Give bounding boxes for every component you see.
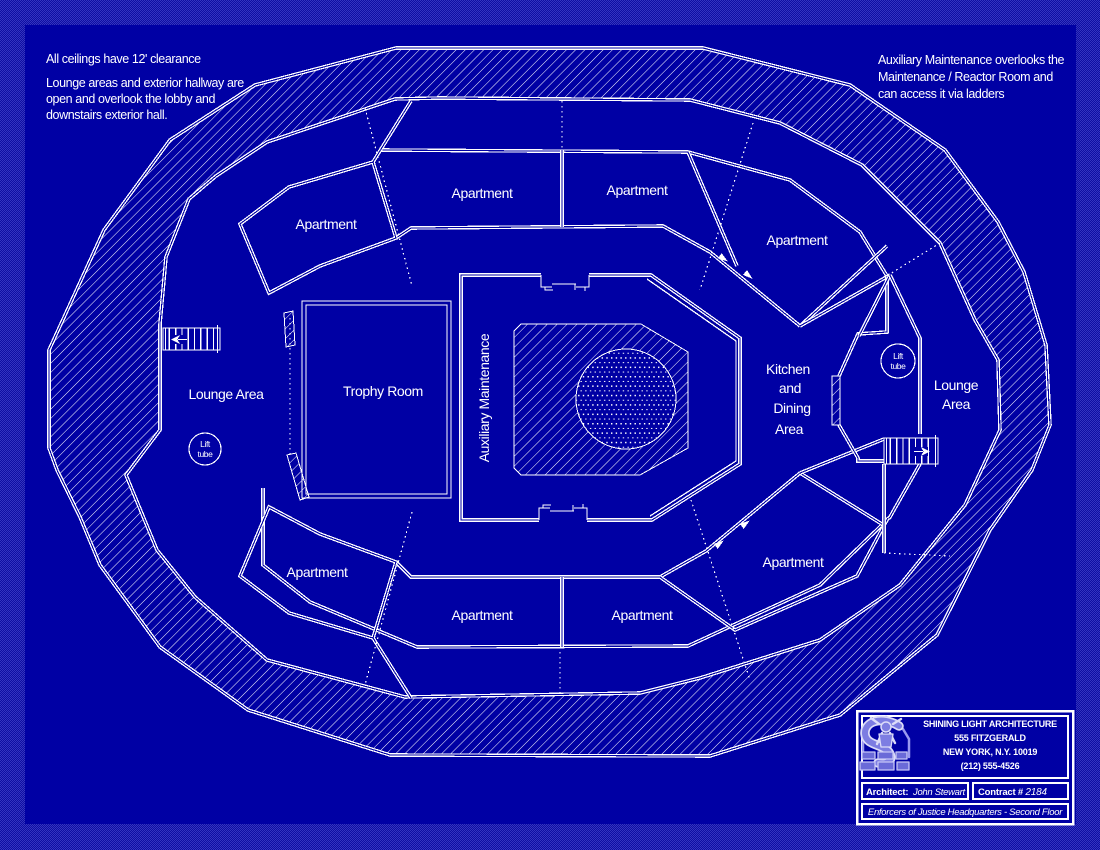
svg-text:Apartment: Apartment xyxy=(452,607,513,623)
svg-text:tube: tube xyxy=(891,361,907,371)
svg-text:Contract # 2184: Contract # 2184 xyxy=(978,787,1048,798)
svg-text:downstairs exterior hall.: downstairs exterior hall. xyxy=(46,108,167,122)
svg-text:Dining: Dining xyxy=(773,400,810,416)
svg-text:Apartment: Apartment xyxy=(296,216,357,232)
svg-text:Apartment: Apartment xyxy=(452,185,513,201)
svg-text:Apartment: Apartment xyxy=(607,182,668,198)
svg-text:Area: Area xyxy=(775,421,804,437)
svg-text:Auxiliary Maintenance: Auxiliary Maintenance xyxy=(476,333,492,462)
svg-text:(212) 555-4526: (212) 555-4526 xyxy=(961,761,1020,771)
svg-text:open and overlook the lobby an: open and overlook the lobby and xyxy=(46,92,215,106)
svg-text:Lift: Lift xyxy=(893,351,904,361)
svg-text:Maintenance / Reactor Room and: Maintenance / Reactor Room and xyxy=(878,70,1053,84)
svg-text:can access it via ladders: can access it via ladders xyxy=(878,87,1004,101)
svg-text:Auxiliary Maintenance overlook: Auxiliary Maintenance overlooks the xyxy=(878,53,1065,67)
svg-text:Enforcers of Justice Headquart: Enforcers of Justice Headquarters - Seco… xyxy=(868,807,1063,818)
svg-text:All ceilings have 12' clearanc: All ceilings have 12' clearance xyxy=(46,52,201,66)
svg-text:Trophy Room: Trophy Room xyxy=(343,383,423,399)
svg-text:Apartment: Apartment xyxy=(287,564,348,580)
svg-text:555 FITZGERALD: 555 FITZGERALD xyxy=(954,733,1026,743)
svg-text:Apartment: Apartment xyxy=(612,607,673,623)
svg-text:SHINING LIGHT ARCHITECTURE: SHINING LIGHT ARCHITECTURE xyxy=(923,719,1057,729)
svg-text:NEW YORK, N.Y. 10019: NEW YORK, N.Y. 10019 xyxy=(943,747,1038,757)
svg-text:Lift: Lift xyxy=(200,439,211,449)
svg-text:John Stewart: John Stewart xyxy=(912,787,966,798)
svg-text:and: and xyxy=(779,380,801,396)
svg-text:tube: tube xyxy=(198,449,214,459)
svg-text:Apartment: Apartment xyxy=(763,554,824,570)
svg-text:Lounge areas and exterior hall: Lounge areas and exterior hallway are xyxy=(46,76,244,90)
svg-text:Area: Area xyxy=(942,396,971,412)
svg-text:Lounge: Lounge xyxy=(934,377,979,393)
svg-text:Architect:: Architect: xyxy=(866,787,908,798)
svg-text:Lounge Area: Lounge Area xyxy=(188,386,264,402)
svg-text:Kitchen: Kitchen xyxy=(766,361,810,377)
svg-text:Apartment: Apartment xyxy=(767,232,828,248)
